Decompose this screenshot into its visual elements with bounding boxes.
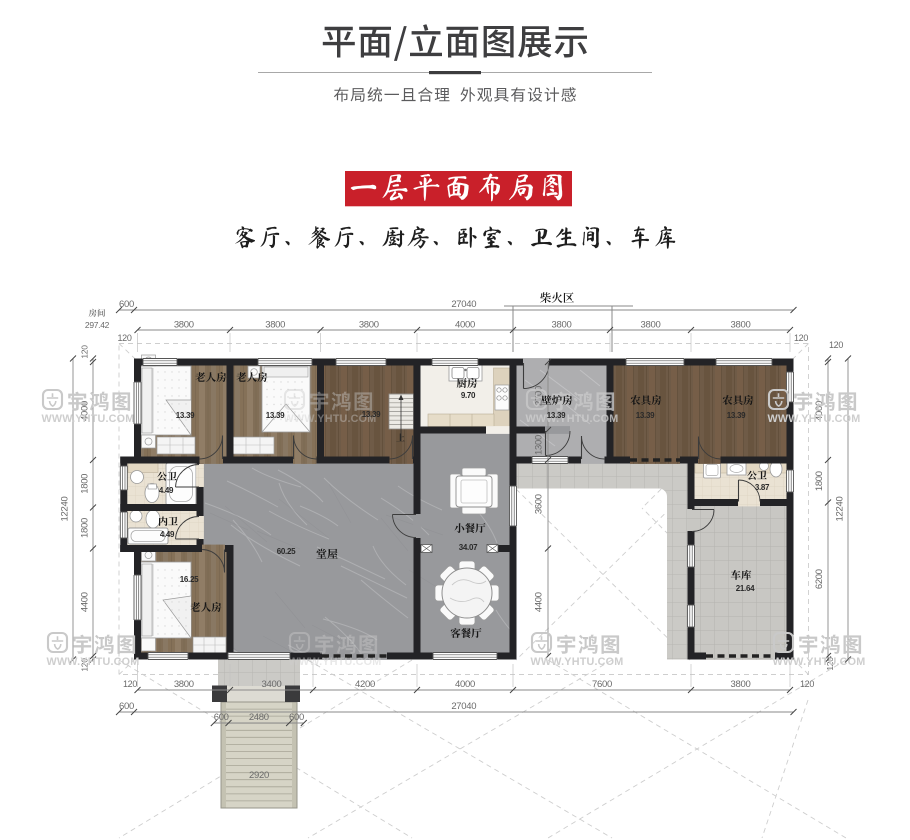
svg-text:600: 600 [119, 299, 134, 310]
svg-text:120: 120 [80, 345, 90, 359]
svg-text:13.39: 13.39 [727, 411, 746, 420]
svg-text:4200: 4200 [355, 679, 375, 690]
svg-text:3800: 3800 [731, 679, 751, 690]
svg-text:3800: 3800 [265, 320, 285, 331]
svg-text:9.70: 9.70 [461, 391, 476, 400]
svg-text:120: 120 [800, 679, 814, 689]
svg-text:120: 120 [794, 333, 808, 343]
svg-text:27040: 27040 [451, 701, 476, 712]
svg-text:13.39: 13.39 [362, 410, 381, 419]
svg-text:4000: 4000 [455, 679, 475, 690]
svg-text:13.39: 13.39 [636, 411, 655, 420]
svg-text:600: 600 [119, 701, 134, 712]
svg-text:34.07: 34.07 [459, 543, 478, 552]
svg-text:3400: 3400 [262, 679, 282, 690]
svg-text:4400: 4400 [80, 592, 91, 612]
svg-text:60.25: 60.25 [277, 547, 296, 556]
svg-text:3800: 3800 [174, 320, 194, 331]
svg-text:297.42: 297.42 [85, 320, 110, 330]
svg-text:4.49: 4.49 [159, 486, 174, 495]
svg-text:13.39: 13.39 [266, 411, 285, 420]
svg-text:13.39: 13.39 [176, 411, 195, 420]
svg-text:12240: 12240 [835, 497, 846, 522]
svg-text:1800: 1800 [80, 518, 91, 538]
svg-text:3800: 3800 [174, 679, 194, 690]
svg-text:3800: 3800 [359, 320, 379, 331]
svg-text:4400: 4400 [534, 592, 545, 612]
svg-text:7600: 7600 [592, 679, 612, 690]
svg-text:3.87: 3.87 [755, 483, 770, 492]
svg-text:21.64: 21.64 [736, 584, 755, 593]
svg-text:3800: 3800 [552, 320, 572, 331]
svg-text:120: 120 [117, 333, 131, 343]
svg-text:1800: 1800 [814, 471, 825, 491]
svg-text:4000: 4000 [455, 320, 475, 331]
svg-text:1300: 1300 [534, 435, 545, 455]
svg-text:2920: 2920 [249, 770, 269, 781]
svg-text:3800: 3800 [641, 320, 661, 331]
svg-text:1800: 1800 [80, 474, 91, 494]
svg-text:3600: 3600 [534, 494, 545, 514]
svg-text:16.25: 16.25 [180, 575, 199, 584]
svg-text:600: 600 [289, 712, 304, 723]
svg-text:4.49: 4.49 [160, 530, 175, 539]
svg-text:3800: 3800 [731, 320, 751, 331]
svg-text:120: 120 [829, 340, 843, 350]
svg-text:600: 600 [214, 712, 229, 723]
svg-text:2480: 2480 [249, 712, 269, 723]
svg-text:27040: 27040 [451, 299, 476, 310]
svg-text:12240: 12240 [60, 497, 71, 522]
svg-text:6200: 6200 [814, 569, 825, 589]
svg-text:120: 120 [123, 679, 137, 689]
svg-text:13.39: 13.39 [547, 411, 566, 420]
